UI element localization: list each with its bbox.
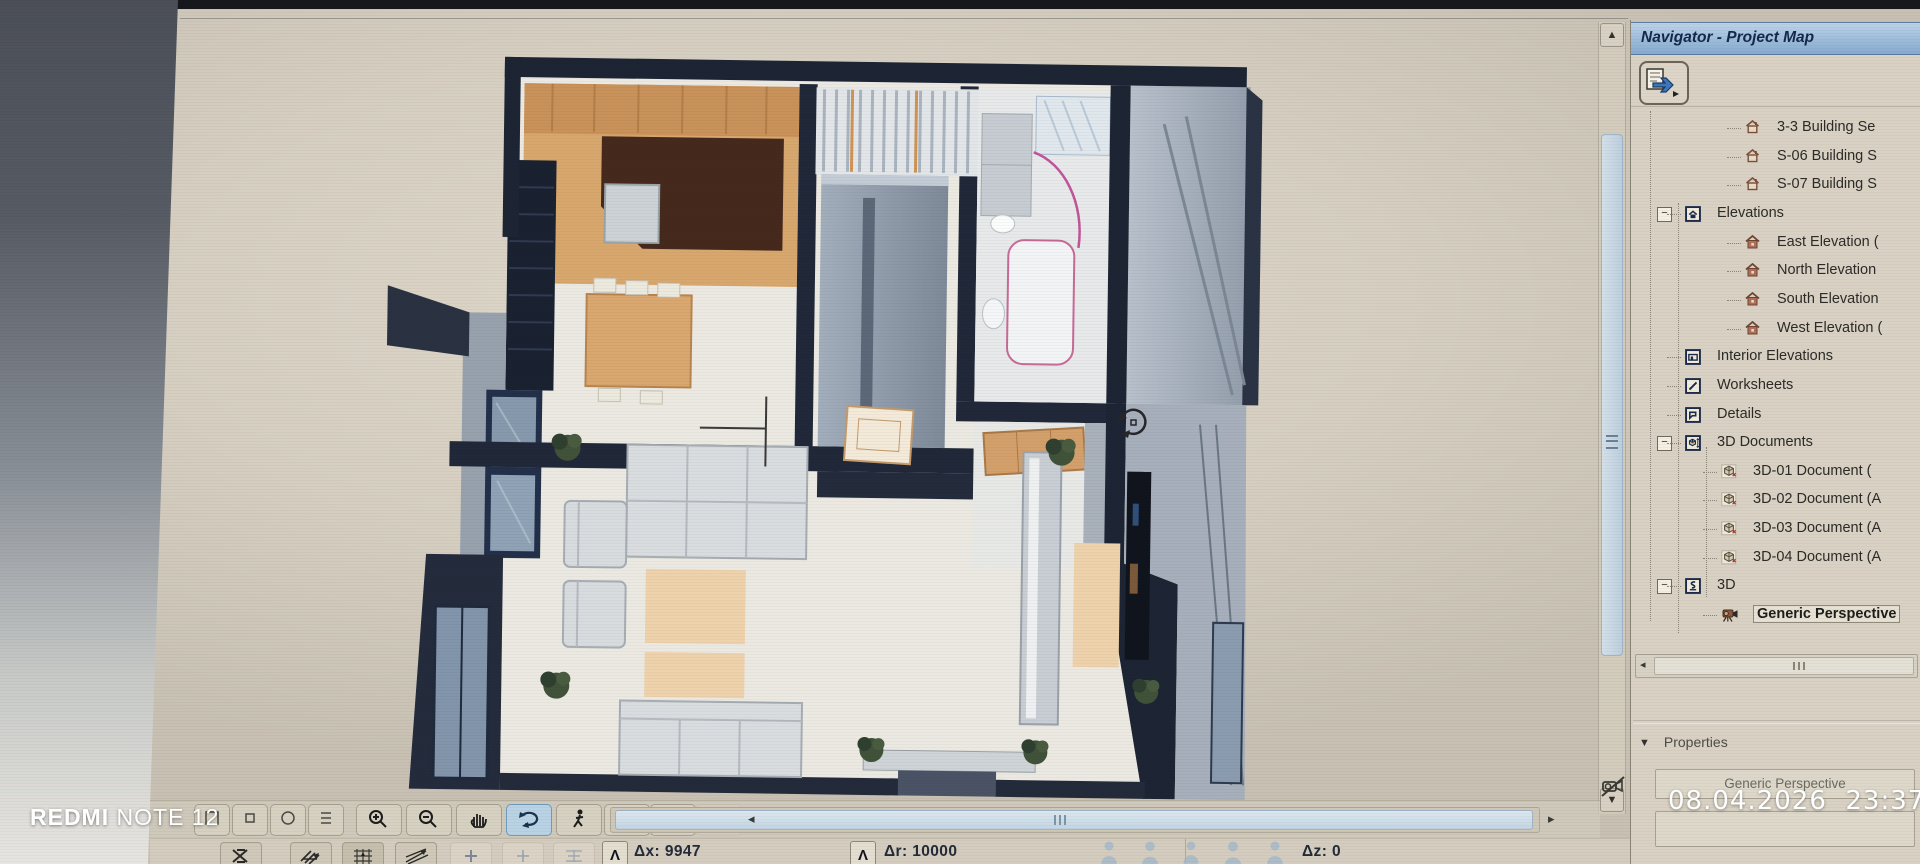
tree-connector-line xyxy=(1667,214,1681,215)
elevation-icon xyxy=(1745,321,1760,340)
photographed-screen: ▲ ▼ · ◂ ▸ Λ Δx: 9947 xyxy=(0,0,1920,864)
document-3d-icon xyxy=(1721,521,1737,541)
tree-item-label: 3D-04 Document (A xyxy=(1753,549,1881,565)
tree-item-3d-02-document-a[interactable]: 3D-02 Document (A xyxy=(1633,487,1920,513)
hscroll-left-arrow[interactable]: ◂ xyxy=(748,809,755,829)
tracker-dz-value[interactable]: Δz: 0 xyxy=(1302,843,1341,861)
tree-item-generic-perspective[interactable]: Generic Perspective xyxy=(1633,602,1920,628)
rotated-grid-button[interactable] xyxy=(290,842,332,864)
tree-connector-line xyxy=(1727,185,1741,186)
tree-item-south-elevation[interactable]: South Elevation xyxy=(1633,287,1920,313)
viewport-vertical-scrollbar[interactable]: ▲ ▼ xyxy=(1598,22,1626,814)
tree-connector-line xyxy=(1727,271,1741,272)
document-3d-folder-icon xyxy=(1685,435,1701,456)
hscroll-right-arrow[interactable]: ▸ xyxy=(1548,809,1555,829)
tree-connector-line xyxy=(1703,500,1717,501)
tree-connector-line xyxy=(1703,558,1717,559)
tree-item-label: Elevations xyxy=(1717,205,1784,221)
tree-hscroll-left-arrow[interactable]: ◂ xyxy=(1640,658,1646,671)
tracker-dx-value[interactable]: Δx: 9947 xyxy=(634,843,701,861)
navigator-panel: Navigator - Project Map 3-3 Building SeS… xyxy=(1631,22,1920,864)
tree-item-label: South Elevation xyxy=(1777,291,1879,307)
vertical-scroll-thumb[interactable] xyxy=(1601,134,1623,656)
tree-connector-line xyxy=(1703,615,1717,616)
tree-item-label: 3D xyxy=(1717,577,1736,593)
project-map-tree: 3-3 Building SeS-06 Building SS-07 Build… xyxy=(1631,106,1920,652)
tree-item-s-07-building-s[interactable]: S-07 Building S xyxy=(1633,172,1920,198)
tree-connector-line xyxy=(1667,415,1681,416)
bathroom xyxy=(974,89,1114,403)
camera-crossed-icon xyxy=(1600,775,1626,799)
properties-header-label: Properties xyxy=(1664,734,1728,750)
tree-item-label: S-07 Building S xyxy=(1777,176,1877,192)
tree-item-label: North Elevation xyxy=(1777,262,1876,278)
tree-item-label: Generic Perspective xyxy=(1753,605,1900,623)
tree-item-label: 3D-02 Document (A xyxy=(1753,491,1881,507)
properties-settings-field[interactable] xyxy=(1655,811,1915,847)
properties-header[interactable]: ▼Properties xyxy=(1639,734,1728,750)
viewport-bottom-bar: · ◂ ▸ xyxy=(150,800,1600,839)
ghost-people-icon xyxy=(1095,841,1295,864)
elevation-folder-icon xyxy=(1685,206,1701,227)
scroll-up-button[interactable]: ▲ xyxy=(1600,23,1624,47)
building-section-icon xyxy=(1745,120,1760,139)
document-3d-icon xyxy=(1721,550,1737,570)
project-chooser-button[interactable] xyxy=(1639,61,1689,105)
tree-connector-line xyxy=(1727,243,1741,244)
folder-3d-icon xyxy=(1685,578,1701,599)
camera-watermark-device: REDMI NOTE 12 xyxy=(30,804,219,831)
project-chooser-icon xyxy=(1645,67,1681,97)
zoom-out-button[interactable] xyxy=(406,804,452,836)
scroll-grip-icon xyxy=(1054,815,1070,825)
snap-point-button-2[interactable] xyxy=(502,842,544,864)
tracker-dr-value[interactable]: Δr: 10000 xyxy=(884,843,957,861)
tree-item-label: 3D-01 Document ( xyxy=(1753,463,1871,479)
tree-connector-line xyxy=(1727,329,1741,330)
tracker-x-toggle[interactable]: Λ xyxy=(602,841,628,864)
tree-item-details[interactable]: Details xyxy=(1633,402,1920,428)
tree-item-label: S-06 Building S xyxy=(1777,148,1877,164)
elevation-icon xyxy=(1745,263,1760,282)
tree-item-label: 3D-03 Document (A xyxy=(1753,520,1881,536)
tree-item-label: 3-3 Building Se xyxy=(1777,119,1875,135)
tree-connector-line xyxy=(1667,386,1681,387)
explore-walk-button[interactable] xyxy=(556,804,602,836)
tree-item-label: Interior Elevations xyxy=(1717,348,1833,364)
elevation-icon xyxy=(1745,235,1760,254)
navigator-title: Navigator - Project Map xyxy=(1631,23,1920,47)
tree-item-label: West Elevation ( xyxy=(1777,320,1882,336)
snap-point-button-3[interactable] xyxy=(553,842,595,864)
interior-elevation-icon xyxy=(1685,349,1701,370)
building-section-icon xyxy=(1745,177,1760,196)
zoom-in-button[interactable] xyxy=(356,804,402,836)
tree-item-interior-elevations[interactable]: Interior Elevations xyxy=(1633,344,1920,370)
hidden-tool-3-button[interactable] xyxy=(270,804,306,836)
document-3d-icon xyxy=(1721,464,1737,484)
tree-item-label: Details xyxy=(1717,406,1761,422)
hidden-tool-4-button[interactable] xyxy=(308,804,344,836)
tree-item-west-elevation[interactable]: West Elevation ( xyxy=(1633,316,1920,342)
properties-divider xyxy=(1633,720,1920,724)
camera-icon xyxy=(1721,607,1740,628)
tree-item-label: 3D Documents xyxy=(1717,434,1813,450)
building-section-icon xyxy=(1745,149,1760,168)
tracker-r-toggle[interactable]: Λ xyxy=(850,841,876,864)
tree-item-3-3-building-se[interactable]: 3-3 Building Se xyxy=(1633,115,1920,141)
tree-item-worksheets[interactable]: Worksheets xyxy=(1633,373,1920,399)
tree-item-3d-03-document-a[interactable]: 3D-03 Document (A xyxy=(1633,516,1920,542)
tree-connector-line xyxy=(1703,472,1717,473)
gravity-tool-button[interactable] xyxy=(220,842,262,864)
scroll-grip-icon xyxy=(1793,662,1805,670)
skewed-grid-button[interactable] xyxy=(395,842,437,864)
tree-item-north-elevation[interactable]: North Elevation xyxy=(1633,258,1920,284)
tree-connector-line xyxy=(1667,357,1681,358)
tree-item-3d-01-document[interactable]: 3D-01 Document ( xyxy=(1633,459,1920,485)
tree-connector-line xyxy=(1667,586,1681,587)
left-wall-elements xyxy=(384,158,557,558)
hidden-tool-2-button[interactable] xyxy=(232,804,268,836)
tree-item-east-elevation[interactable]: East Elevation ( xyxy=(1633,230,1920,256)
tree-item-3d-documents[interactable]: −3D Documents xyxy=(1633,430,1920,456)
tree-connector-line xyxy=(1703,529,1717,530)
tree-item-s-06-building-s[interactable]: S-06 Building S xyxy=(1633,144,1920,170)
tree-connector-line xyxy=(1667,443,1681,444)
tree-connector-line xyxy=(1727,128,1741,129)
snap-point-button-1[interactable] xyxy=(450,842,492,864)
tree-item-elevations[interactable]: −Elevations xyxy=(1633,201,1920,227)
navigator-titlebar[interactable]: Navigator - Project Map xyxy=(1631,22,1920,55)
collapse-triangle-icon: ▼ xyxy=(1639,737,1650,749)
tree-item-3d-04-document-a[interactable]: 3D-04 Document (A xyxy=(1633,545,1920,571)
tree-hscroll-thumb[interactable] xyxy=(1654,657,1914,675)
pan-hand-button[interactable] xyxy=(456,804,502,836)
snap-grid-button[interactable] xyxy=(342,842,384,864)
tree-connector-line xyxy=(1727,157,1741,158)
tree-item-label: Worksheets xyxy=(1717,377,1793,393)
tree-item-3d[interactable]: −3D xyxy=(1633,573,1920,599)
tree-item-label: East Elevation ( xyxy=(1777,234,1879,250)
orbit-button[interactable] xyxy=(506,804,552,836)
tree-horizontal-scrollbar[interactable]: ◂ xyxy=(1635,654,1918,678)
detail-icon xyxy=(1685,407,1701,428)
worksheet-icon xyxy=(1685,378,1701,399)
document-3d-icon xyxy=(1721,492,1737,512)
scroll-grip-icon xyxy=(1606,435,1618,449)
elevation-icon xyxy=(1745,292,1760,311)
camera-watermark-timestamp: 08.04.2026 23:37 xyxy=(1668,786,1920,816)
tree-connector-line xyxy=(1727,300,1741,301)
